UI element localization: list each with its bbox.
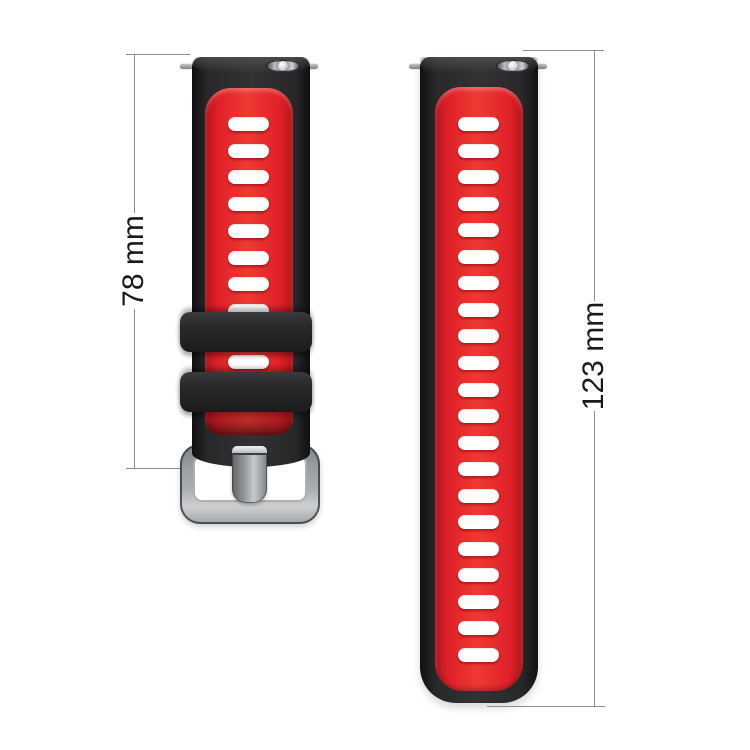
long-strap-slot <box>458 117 499 131</box>
short-strap-slot <box>228 170 269 184</box>
product-dimension-diagram: 78 mm 123 mm <box>0 0 750 750</box>
keeper-loop <box>180 312 312 352</box>
long-strap-slot <box>458 223 499 237</box>
short-strap-slot <box>228 277 269 291</box>
long-strap-slot <box>458 197 499 211</box>
buckle-tongue <box>232 446 267 503</box>
long-strap-slot <box>458 436 499 450</box>
long-strap-slot <box>458 303 499 317</box>
quick-release-ball <box>278 61 288 71</box>
short-strap-slot <box>228 144 269 158</box>
short-strap-dimension-tick-top <box>126 54 190 55</box>
long-strap-slot <box>458 144 499 158</box>
long-strap-slot <box>458 383 499 397</box>
long-strap-slot <box>458 542 499 556</box>
long-strap-slot <box>458 489 499 503</box>
long-strap-slot <box>458 568 499 582</box>
long-strap-slot <box>458 250 499 264</box>
long-strap-slot <box>458 276 499 290</box>
short-strap-length-label: 78 mm <box>116 213 152 309</box>
long-strap-slot <box>458 170 499 184</box>
short-strap-slot <box>228 251 269 265</box>
short-strap-slot <box>228 197 269 211</box>
quick-release-knob <box>496 60 530 72</box>
long-strap-slot <box>458 356 499 370</box>
short-strap-dimension-tick-bottom <box>126 468 180 469</box>
long-strap-length-label: 123 mm <box>576 301 612 411</box>
short-strap-slot <box>228 224 269 238</box>
long-strap-slot <box>458 515 499 529</box>
short-strap-slot <box>228 117 269 131</box>
long-strap-slot <box>458 648 499 662</box>
long-strap-slot <box>458 329 499 343</box>
quick-release-knob <box>266 60 300 72</box>
quick-release-ball <box>508 61 518 71</box>
keeper-loop <box>180 372 312 412</box>
buckle-tongue-loop <box>232 446 267 455</box>
long-strap-slot <box>458 462 499 476</box>
long-strap-slot <box>458 409 499 423</box>
long-strap-dimension-tick-top <box>523 50 604 51</box>
long-strap-dimension-tick-bottom <box>487 706 605 707</box>
short-strap-slot <box>228 355 269 369</box>
long-strap-slot <box>458 621 499 635</box>
long-strap-slot <box>458 595 499 609</box>
